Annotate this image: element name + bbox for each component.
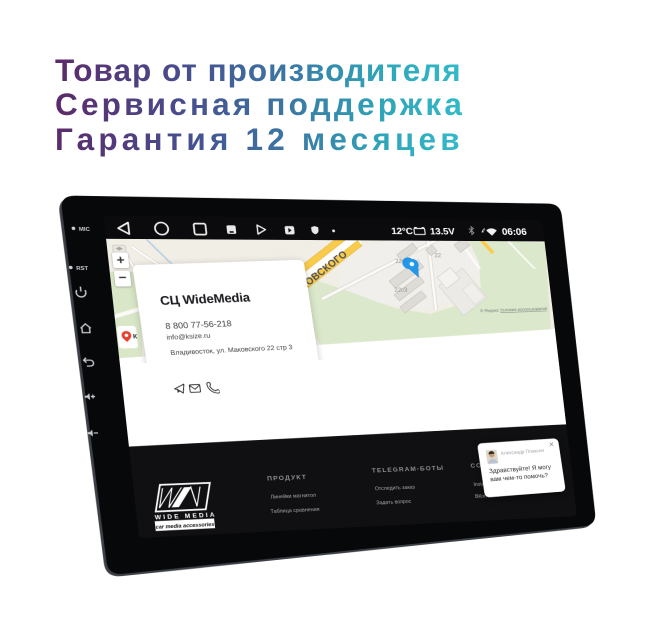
svg-text:RST: RST	[76, 266, 89, 272]
svg-text:MIC: MIC	[79, 227, 91, 233]
